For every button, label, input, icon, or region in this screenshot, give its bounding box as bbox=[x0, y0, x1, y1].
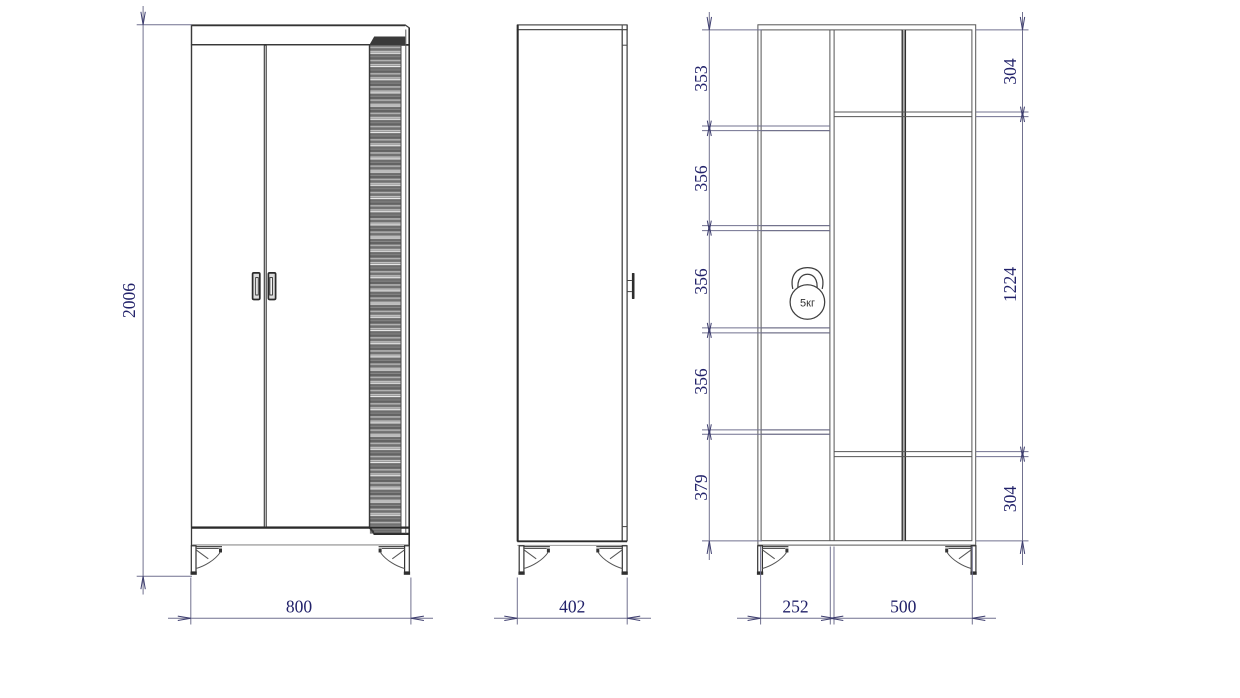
svg-text:1224: 1224 bbox=[1000, 267, 1020, 302]
svg-text:304: 304 bbox=[1000, 486, 1020, 513]
svg-text:356: 356 bbox=[691, 268, 711, 295]
svg-text:353: 353 bbox=[691, 65, 711, 92]
svg-text:304: 304 bbox=[1000, 58, 1020, 85]
svg-text:800: 800 bbox=[286, 597, 313, 617]
svg-text:500: 500 bbox=[890, 597, 917, 617]
svg-text:2006: 2006 bbox=[119, 283, 139, 318]
svg-text:379: 379 bbox=[691, 474, 711, 501]
svg-text:5кг: 5кг bbox=[800, 298, 815, 310]
svg-text:356: 356 bbox=[691, 368, 711, 395]
svg-text:402: 402 bbox=[559, 597, 585, 617]
svg-text:252: 252 bbox=[782, 597, 808, 617]
svg-text:356: 356 bbox=[691, 165, 711, 192]
